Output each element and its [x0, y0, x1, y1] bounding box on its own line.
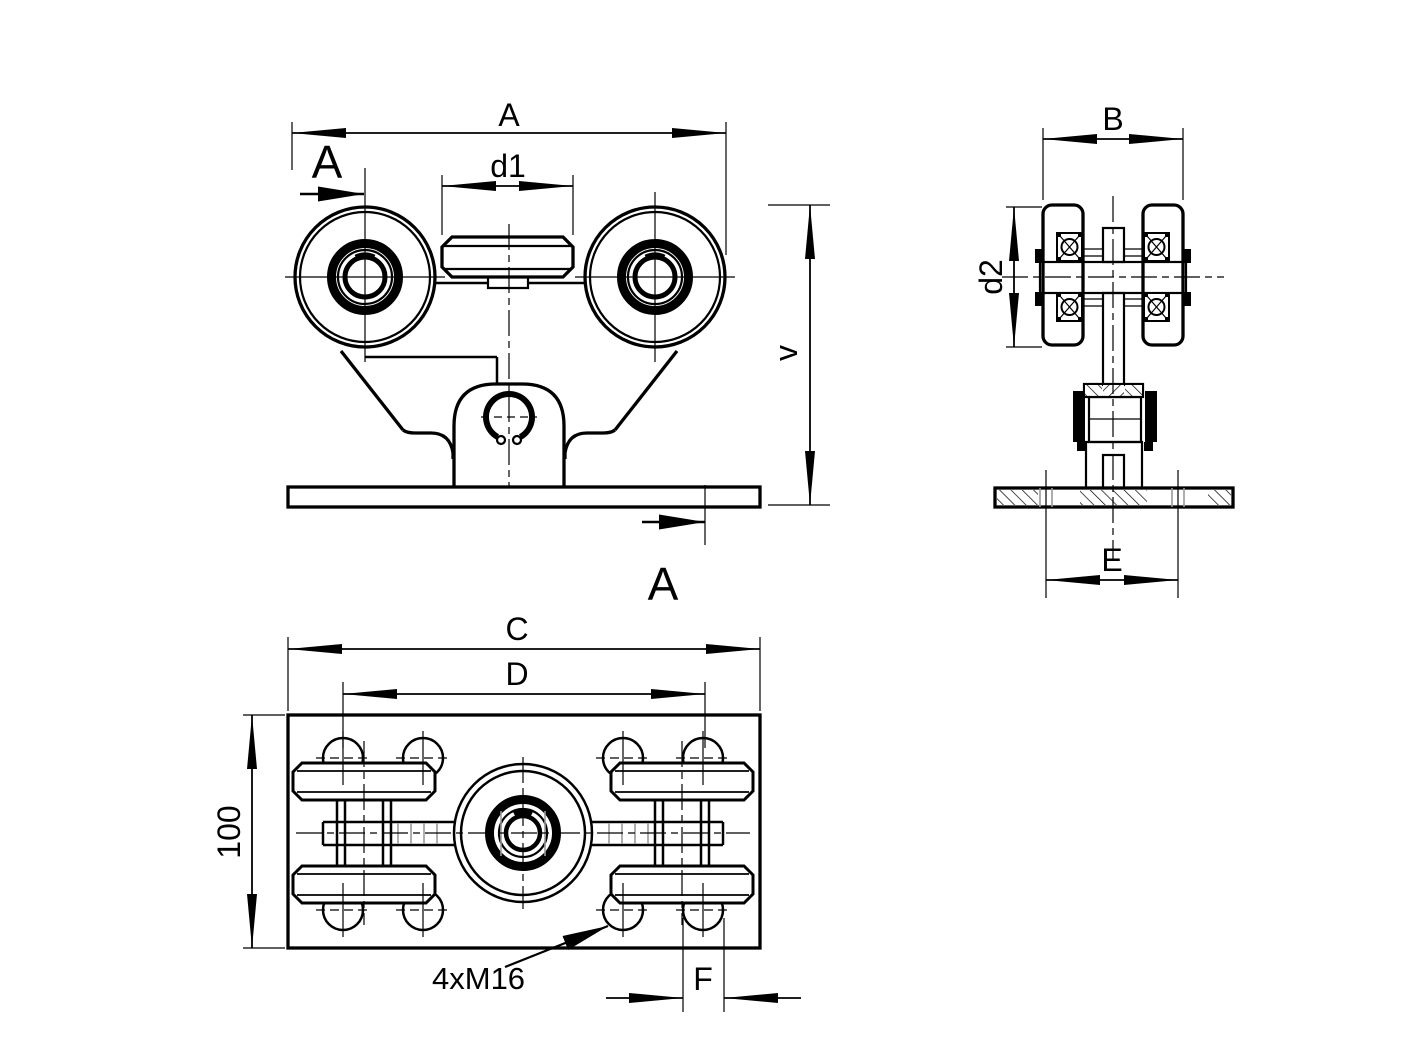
side-base-plate — [995, 488, 1233, 507]
thread-note: 4xM16 — [432, 926, 608, 996]
dimension-100: 100 — [211, 715, 285, 948]
dimension-d: D — [343, 656, 705, 748]
bearing-bottom-right — [1144, 293, 1169, 321]
dim-b-label: B — [1102, 101, 1123, 137]
dim-c-label: C — [505, 611, 528, 647]
bearing-bottom-left — [1057, 293, 1082, 321]
dimension-b: B — [1043, 101, 1183, 200]
section-indicator-top: A — [300, 136, 364, 194]
dim-d2-label: d2 — [973, 259, 1009, 295]
bearing-top-left — [1057, 233, 1082, 261]
section-left-wheel — [1043, 205, 1083, 345]
dim-f-label: F — [693, 961, 713, 997]
seal-mark — [1182, 249, 1191, 263]
section-letter-bottom: A — [648, 558, 679, 610]
seal-mark — [1035, 249, 1044, 263]
front-centerlines — [365, 168, 655, 486]
dim-a-label: A — [498, 97, 520, 133]
bearing-top-right — [1144, 233, 1169, 261]
section-indicator-bottom: A — [642, 522, 705, 610]
dimension-e: E — [1046, 542, 1178, 580]
front-base-plate — [288, 485, 760, 545]
section-right-wheel — [1143, 205, 1183, 345]
seal-mark — [1182, 292, 1191, 306]
side-section-view: B d2 E — [973, 101, 1233, 598]
mount-block — [1073, 384, 1157, 488]
dim-d-label: D — [505, 656, 528, 692]
plan-centerlines — [296, 731, 750, 937]
dim-d1-label: d1 — [490, 148, 526, 184]
section-letter-top: A — [312, 136, 343, 188]
guide-roller — [442, 237, 573, 288]
thread-note-label: 4xM16 — [432, 961, 525, 996]
support-column — [1086, 442, 1142, 488]
dim-v-label: v — [768, 345, 804, 361]
dim-100-label: 100 — [211, 805, 247, 858]
front-view: A d1 v A A — [285, 97, 830, 610]
seal-mark — [1035, 292, 1044, 306]
dim-e-label: E — [1101, 542, 1122, 578]
dimension-v: v — [768, 205, 830, 505]
cad-drawing: A d1 v A A — [0, 0, 1416, 1062]
plan-view: C D 100 F 4xM16 — [211, 611, 801, 1012]
dimension-d2: d2 — [973, 207, 1042, 347]
dimension-d1: d1 — [442, 148, 573, 235]
